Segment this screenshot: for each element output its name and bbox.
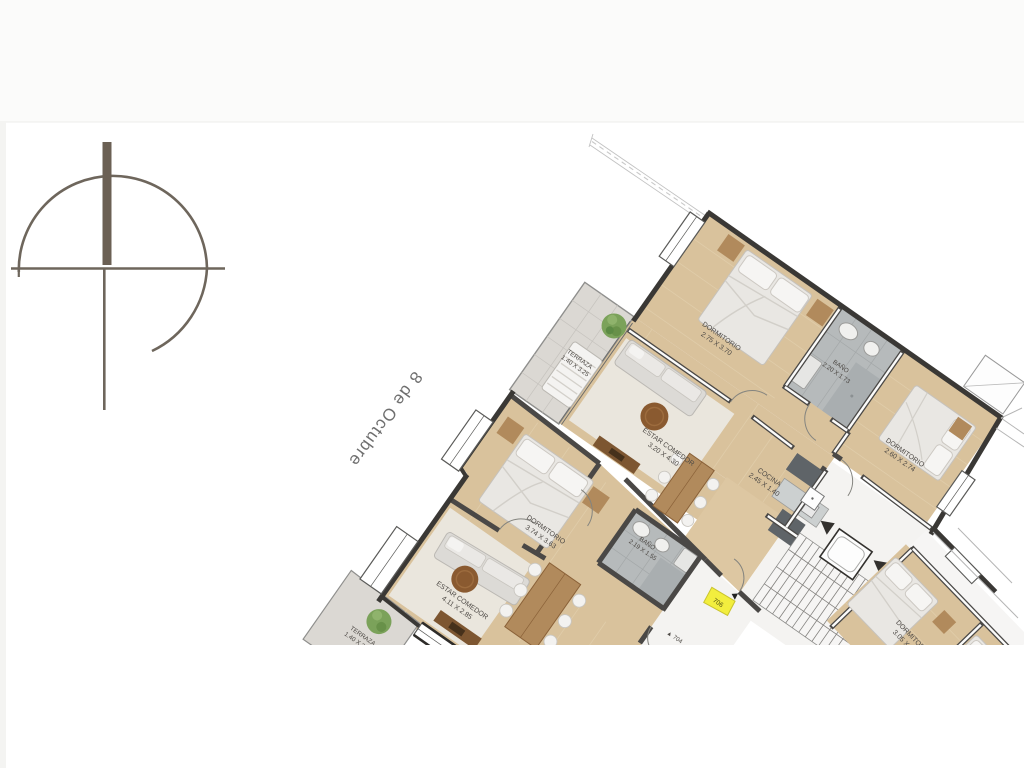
svg-text:8 de Octubre: 8 de Octubre: [345, 368, 427, 470]
